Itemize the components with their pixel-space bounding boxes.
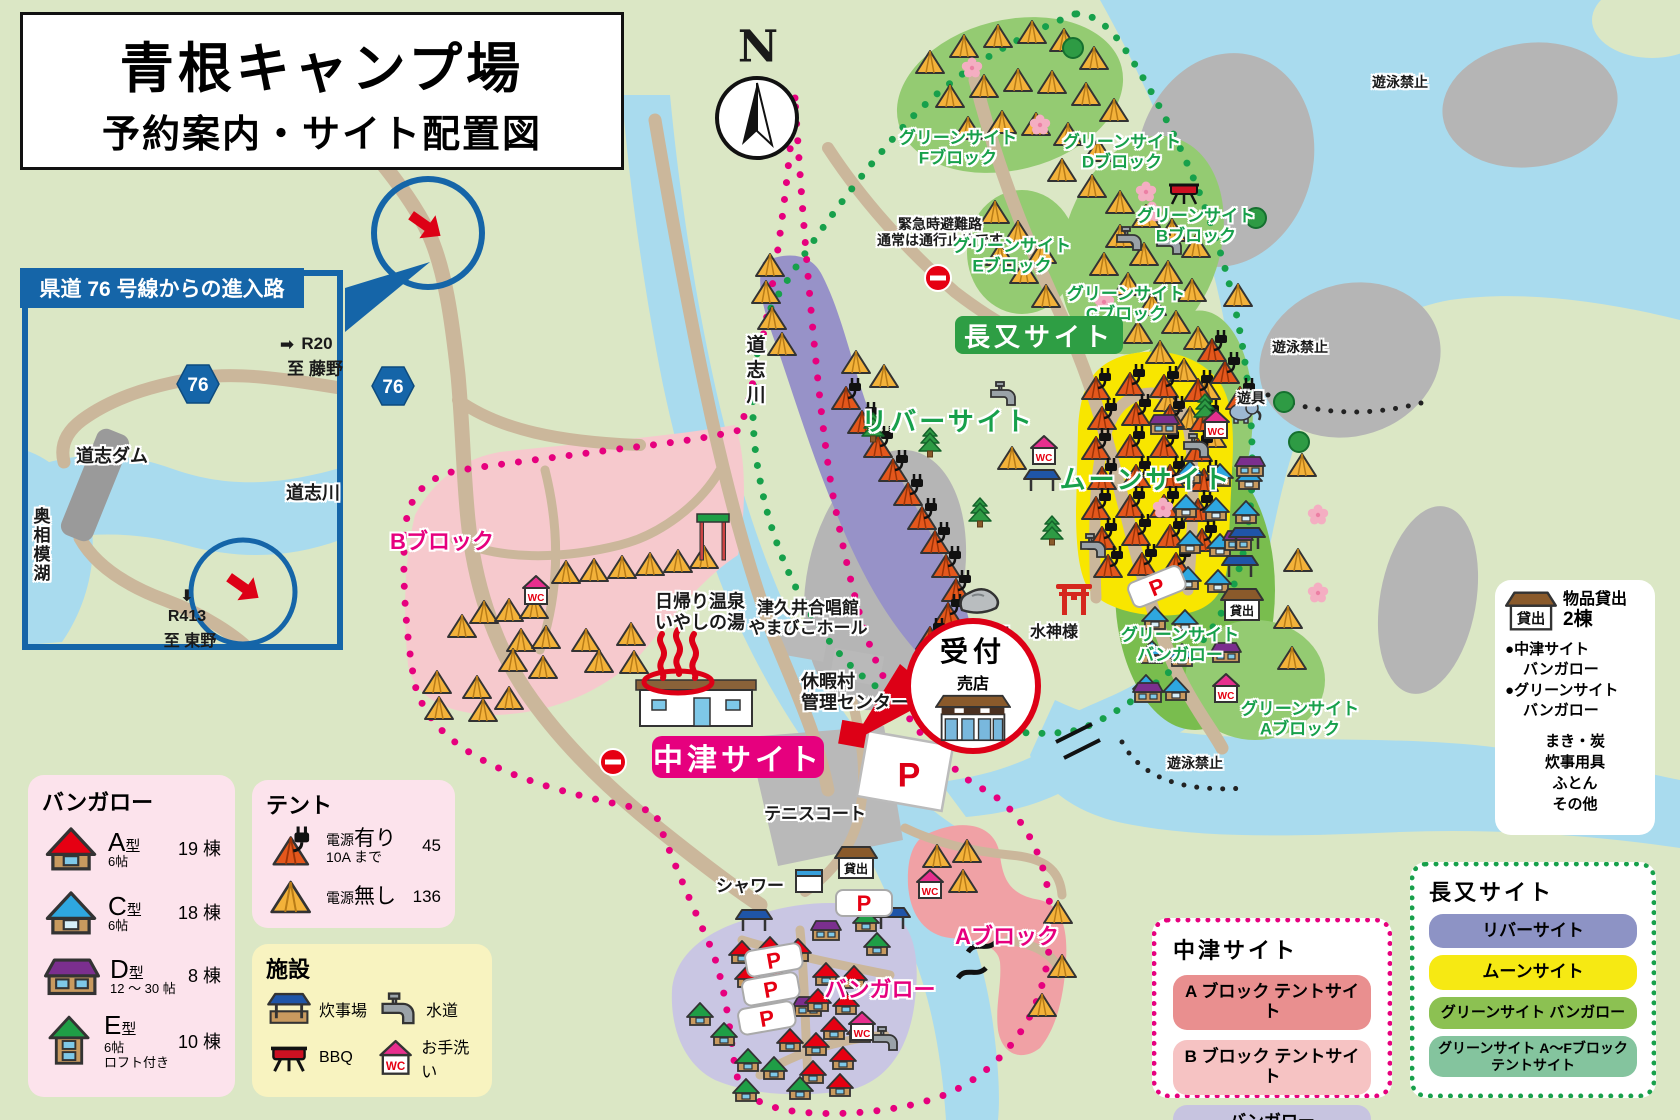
doshi-river-label: 道志川 (741, 335, 768, 410)
legend-nakatsu-title: 中津サイト (1173, 933, 1371, 965)
bbq-icon (1169, 185, 1199, 204)
green-site-b-label: グリーンサイトBブロック (1137, 206, 1255, 245)
shower-hut-icon (796, 870, 822, 892)
bungalow-d-icon (1133, 683, 1163, 702)
green-site-a-label: グリーンサイトAブロック (1241, 699, 1359, 738)
river-site-label: リバーサイト (861, 402, 1034, 439)
tree-icon (1063, 38, 1083, 58)
inset-dam-label: 道志ダム (76, 442, 148, 468)
facility-water: 水道 (377, 990, 478, 1028)
compass-n-label: N (738, 22, 778, 73)
rental-hut-icon (1505, 590, 1557, 632)
legend-bungalow-title: バンガロー (42, 785, 221, 817)
rental-site-1: ●中津サイト (1505, 640, 1645, 660)
inset-r413-dest: 至 東野 (164, 627, 216, 651)
rental-hut-icon (1221, 589, 1263, 620)
route-76-shield-icon (177, 365, 219, 403)
inset-title: 県道 76 号線からの進入路 (39, 273, 284, 303)
center-label: 休暇村管理センター (801, 671, 909, 712)
facility-toilet: お手洗い (377, 1034, 478, 1082)
onsen-label: 日帰り温泉いやしの湯 (655, 591, 745, 632)
reception-callout: 受付 売店 (905, 618, 1041, 754)
bungalow-d-icon (811, 921, 841, 940)
bbq-icon (266, 1040, 312, 1076)
arrow-down-icon: ⬇ (180, 586, 193, 606)
legend-facility: 施設 炊事場 水道 BBQ お手洗い (252, 944, 492, 1097)
moon-site-label: ムーンサイト (1060, 460, 1233, 497)
tennis-court-label: テニスコート (764, 800, 866, 825)
water-god-label: 水神様 (1030, 618, 1078, 642)
nagamata-site-badge: 長又サイト (955, 316, 1123, 354)
inset-r20-label: R20 (301, 334, 332, 354)
rental-site-2: ●グリーンサイト (1505, 681, 1645, 701)
legend-tent-title: テント (266, 788, 441, 820)
no-swim-label: 遊泳禁止 (1272, 337, 1328, 357)
legend-row-a: A型 6帖 19 棟 (42, 825, 221, 871)
parking-label: P (898, 757, 921, 796)
tent-icon (266, 878, 318, 916)
legend-nakatsu-row-a: A ブロック テントサイト (1173, 975, 1371, 1030)
b-block-label: Bブロック (390, 524, 494, 556)
shower-label: シャワー (716, 872, 784, 897)
legend-facility-title: 施設 (266, 952, 478, 984)
inset-r413-label: R413 (168, 608, 206, 626)
powered-tent-icon (266, 824, 318, 868)
bungalow-d-icon (1235, 457, 1265, 476)
green-site-e-label: グリーンサイトEブロック (953, 236, 1071, 275)
bungalow-c-icon (42, 889, 100, 935)
legend-nakatsu-row-bungalow: バンガロー (1173, 1105, 1371, 1120)
legend-nagamata-river: リバーサイト (1429, 914, 1637, 948)
arrow-right-icon: ➡ (280, 335, 294, 355)
green-site-f-label: グリーンサイトFブロック (899, 128, 1017, 167)
green-site-d-label: グリーンサイトDブロック (1063, 132, 1181, 171)
legend-nakatsu-row-b: B ブロック テントサイト (1173, 1040, 1371, 1095)
no-swim-label: 遊泳禁止 (1372, 72, 1428, 92)
legend-nagamata-bungalow: グリーンサイト バンガロー (1429, 997, 1637, 1029)
legend-nakatsu: 中津サイト A ブロック テントサイト B ブロック テントサイト バンガロー (1152, 918, 1392, 1098)
no-swim-label: 遊泳禁止 (1167, 753, 1223, 773)
no-entry-icon (600, 749, 626, 775)
facility-bbq: BBQ (266, 1034, 367, 1082)
bungalow-a-icon (42, 825, 100, 871)
rental-hut-icon (835, 847, 877, 878)
inset-river-label: 道志川 (286, 479, 340, 505)
legend-row-d: D型 12 〜 30 帖 8 棟 (42, 953, 221, 997)
rental-box-header: 物品貸出 2棟 (1505, 590, 1645, 632)
cooking-shelter-icon (266, 990, 312, 1028)
rental-box: 物品貸出 2棟 ●中津サイト バンガロー ●グリーンサイト バンガロー まき・炭… (1495, 580, 1655, 835)
chorus-hall-label: 津久井合唱館やまびこホール (749, 598, 868, 637)
compass-icon (717, 78, 797, 158)
tree-icon (1274, 392, 1294, 412)
facility-kitchen: 炊事場 (266, 990, 367, 1028)
tree-icon (1289, 432, 1309, 452)
legend-nagamata-title: 長又サイト (1429, 875, 1637, 907)
campground-map-poster: WC 貸出 P (0, 0, 1680, 1120)
shop-icon (935, 694, 1011, 742)
a-block-label: Aブロック (955, 919, 1059, 951)
shop-label: 売店 (957, 670, 989, 694)
bungalow-label: バンガロー (824, 972, 935, 1004)
inset-lake-label: 奥相模湖 (28, 507, 53, 583)
legend-nagamata-blocks: グリーンサイト A〜Fブロック テントサイト (1429, 1036, 1637, 1078)
playground-label: 遊具 (1237, 388, 1265, 408)
nakatsu-site-badge: 中津サイト (652, 736, 824, 778)
bungalow-d-icon (1149, 415, 1179, 434)
legend-nagamata-moon: ムーンサイト (1429, 955, 1637, 989)
wc-hut-icon (377, 1038, 414, 1078)
legend-row-e: E型 6帖 ロフト付き 10 棟 (42, 1011, 221, 1071)
legend-bungalow: バンガロー A型 6帖 19 棟 C型 6帖 18 棟 D型 12 〜 30 帖… (28, 775, 235, 1097)
reception-label: 受付 (940, 630, 1006, 670)
poster-title: 青根キャンプ場 (120, 24, 524, 103)
parking-badge (836, 890, 892, 916)
bungalow-d-icon (42, 953, 102, 997)
green-site-bungalow-label: グリーンサイトバンガロー (1121, 625, 1239, 664)
legend-tent-nopower: 電源無し 136 (266, 878, 441, 916)
no-entry-icon (925, 265, 951, 291)
poster-subtitle: 予約案内・サイト配置図 (102, 103, 542, 158)
legend-row-c: C型 6帖 18 棟 (42, 889, 221, 935)
bungalow-e-icon (42, 1015, 96, 1067)
title-box: 青根キャンプ場 予約案内・サイト配置図 (20, 12, 624, 170)
legend-tent: テント 電源有り 10A まで 45 電源無し 136 (252, 780, 455, 928)
legend-tent-power: 電源有り 10A まで 45 (266, 824, 441, 868)
inset-r20-dest: 至 藤野 (287, 355, 343, 380)
route-76-shield-icon (372, 367, 414, 405)
legend-nagamata: 長又サイト リバーサイト ムーンサイト グリーンサイト バンガロー グリーンサイ… (1410, 862, 1656, 1098)
faucet-icon (377, 991, 419, 1027)
